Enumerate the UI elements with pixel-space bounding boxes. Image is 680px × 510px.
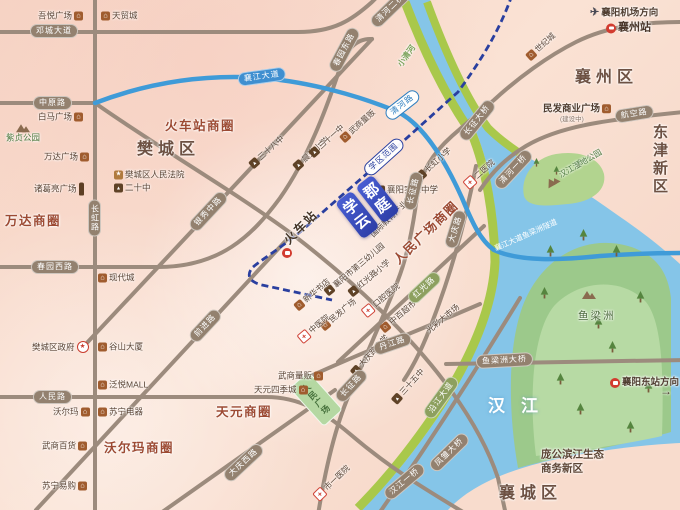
poi-zhugeliang-square: 诸葛亮广场: [34, 183, 84, 196]
pangong-riverside-new-area-text: 庞公滨江生态商务新区: [541, 448, 605, 475]
xiangjiang-avenue-label-text: 襄江大道: [243, 70, 280, 83]
chunyuan-west-road-label-text: 春园西路: [37, 263, 73, 271]
plane-icon: [590, 8, 599, 19]
poi-gushan-tower: 谷山大厦: [98, 343, 143, 352]
walmart-business-circle-text: 沃尔玛商圈: [104, 442, 174, 455]
hanjiang-river-label-text: 汉江: [488, 398, 554, 415]
shop-icon: [78, 482, 87, 491]
fancheng-district-label-text: 樊城区: [137, 142, 200, 158]
shop-icon: [74, 113, 83, 122]
poi-no20-middle-school: 二十中: [114, 184, 151, 193]
yuliangzhou-bridge-label: 鱼梁洲大桥: [476, 352, 534, 369]
shop-icon: [101, 12, 110, 21]
poi-minfa-commercial-plaza: 民发商业广场: [543, 104, 611, 114]
poi-suning-appliance-text: 苏宁电器: [109, 408, 143, 417]
shop-icon: [81, 408, 90, 417]
renmin-road-label-text: 人民路: [39, 393, 66, 401]
poi-suning-store: 苏宁易购: [42, 482, 87, 491]
park-icon: [582, 289, 596, 299]
dongjin-new-district-label-text: 东津新区: [652, 124, 667, 196]
poi-tianmao-city-text: 天贸城: [112, 12, 138, 21]
train-icon: [282, 248, 292, 258]
zhongyuan-road-label: 中原路: [33, 96, 72, 110]
poi-zizhen-park-text: 紫贞公园: [6, 133, 40, 142]
renmin-road-label: 人民路: [33, 390, 72, 404]
poi-wanda-plaza: 万达广场: [44, 153, 89, 162]
wanda-business-circle: 万达商圈: [5, 215, 61, 228]
shop-icon: [98, 408, 107, 417]
xiangcheng-district-label-text: 襄城区: [499, 486, 562, 502]
xiangzhou-district-label-text: 襄州区: [575, 70, 638, 86]
xiangyang-airport-direction-text: 襄阳机场方向: [601, 8, 658, 18]
shop-icon: [98, 381, 107, 390]
poi-suning-appliance: 苏宁电器: [98, 408, 143, 417]
poi-tianyuan-four-seasons-text: 天元四季城: [254, 386, 297, 395]
train-icon: [606, 23, 616, 33]
poi-xiangzhou-station-text: 襄州站: [618, 23, 651, 34]
yuliangzhou-bridge-label-text: 鱼梁洲大桥: [482, 355, 527, 365]
dongjin-new-district-label: 东津新区: [652, 124, 667, 196]
hanjiang-river-label: 汉江: [488, 398, 554, 415]
changhong-road-label: 长虹路: [88, 200, 101, 237]
chunyuan-west-road-label: 春园西路: [31, 260, 79, 274]
statue-icon: [79, 183, 84, 196]
shop-icon: [314, 372, 323, 381]
train-station-business-circle: 火车站商圈: [165, 120, 235, 133]
poi-baima-plaza: 白马广场: [38, 113, 83, 122]
tianyuan-business-circle-text: 天元商圈: [216, 406, 272, 419]
zhongyuan-road-label-text: 中原路: [39, 99, 66, 107]
east-station-arrow-text: →: [660, 385, 672, 397]
hangkong-road-label-text: 航空路: [620, 108, 648, 120]
minfa-plaza-note-text: (建设中): [560, 117, 584, 124]
poi-xiandai-city-text: 现代城: [109, 274, 135, 283]
poi-wushang-mart-south-text: 武商量贩: [278, 372, 312, 381]
poi-baima-plaza-text: 白马广场: [38, 113, 72, 122]
poi-xiangzhou-station: 襄州站: [606, 23, 651, 34]
poi-fancheng-court: 樊城区人民法院: [114, 171, 185, 180]
poi-zhugeliang-square-text: 诸葛亮广场: [34, 185, 77, 194]
dengcheng-avenue-label: 邓城大道: [30, 24, 78, 38]
poi-fanyue-mall: 泛悦MALL: [98, 381, 148, 390]
poi-wanda-plaza-text: 万达广场: [44, 153, 78, 162]
yuliangzhou-island-icon: [582, 289, 598, 299]
yuliangzhou-island-label-text: 鱼梁洲: [578, 311, 616, 322]
xiangcheng-district-label: 襄城区: [499, 486, 562, 502]
shop-icon: [80, 153, 89, 162]
poi-fancheng-court-text: 樊城区人民法院: [125, 171, 185, 180]
poi-walmart-text: 沃尔玛: [53, 408, 79, 417]
poi-tianyuan-four-seasons: 天元四季城: [254, 386, 308, 395]
poi-fanyue-mall-text: 泛悦MALL: [109, 381, 148, 390]
poi-xiandai-city: 现代城: [98, 274, 135, 283]
poi-gushan-tower-text: 谷山大厦: [109, 343, 143, 352]
dengcheng-avenue-label-text: 邓城大道: [36, 27, 72, 35]
star-icon: [114, 171, 123, 180]
shop-icon: [299, 386, 308, 395]
changhong-road-label-text: 长虹路: [91, 205, 99, 232]
fancheng-district-label: 樊城区: [137, 142, 200, 158]
yuliangzhou-island-label: 鱼梁洲: [578, 311, 616, 322]
school-icon: [114, 184, 123, 193]
poi-fancheng-government: 樊城区政府: [32, 341, 89, 353]
poi-walmart: 沃尔玛: [53, 408, 90, 417]
poi-no20-middle-school-text: 二十中: [125, 184, 151, 193]
shop-icon: [98, 343, 107, 352]
poi-tianmao-city: 天贸城: [101, 12, 138, 21]
poi-wushang-department-store-text: 武商百货: [42, 442, 76, 451]
poi-suning-store-text: 苏宁易购: [42, 482, 76, 491]
poi-zizhen-park: 紫贞公园: [6, 122, 40, 142]
minfa-plaza-note: (建设中): [560, 117, 584, 124]
xiangyang-airport-direction: 襄阳机场方向: [590, 8, 658, 19]
shop-icon: [602, 105, 611, 114]
walmart-business-circle: 沃尔玛商圈: [104, 442, 174, 455]
xiangzhou-district-label: 襄州区: [575, 70, 638, 86]
pangong-riverside-new-area: 庞公滨江生态商务新区: [541, 448, 605, 475]
changzheng-road-north-label-text: 长征路: [406, 177, 420, 205]
wanda-business-circle-text: 万达商圈: [5, 215, 61, 228]
railway-station-icon: [282, 248, 294, 258]
location-map: 学 云 郡 庭 人民广场 邓城大道中原路春园西路人民路长虹路春园东路银秀中路前进…: [0, 0, 680, 510]
poi-wushang-department-store: 武商百货: [42, 442, 87, 451]
east-station-arrow: →: [660, 385, 672, 397]
train-station-business-circle-text: 火车站商圈: [165, 120, 235, 133]
gov-icon: [77, 341, 89, 353]
park-icon: [16, 122, 30, 132]
poi-fancheng-government-text: 樊城区政府: [32, 343, 75, 352]
tianyuan-business-circle: 天元商圈: [216, 406, 272, 419]
train-icon: [610, 378, 620, 388]
poi-minfa-commercial-plaza-text: 民发商业广场: [543, 104, 600, 114]
shop-icon: [98, 274, 107, 283]
poi-wushang-mart-south: 武商量贩: [278, 372, 323, 381]
poi-wuyue-plaza: 吾悦广场: [38, 12, 83, 21]
shop-icon: [78, 442, 87, 451]
shop-icon: [74, 12, 83, 21]
poi-wuyue-plaza-text: 吾悦广场: [38, 12, 72, 21]
